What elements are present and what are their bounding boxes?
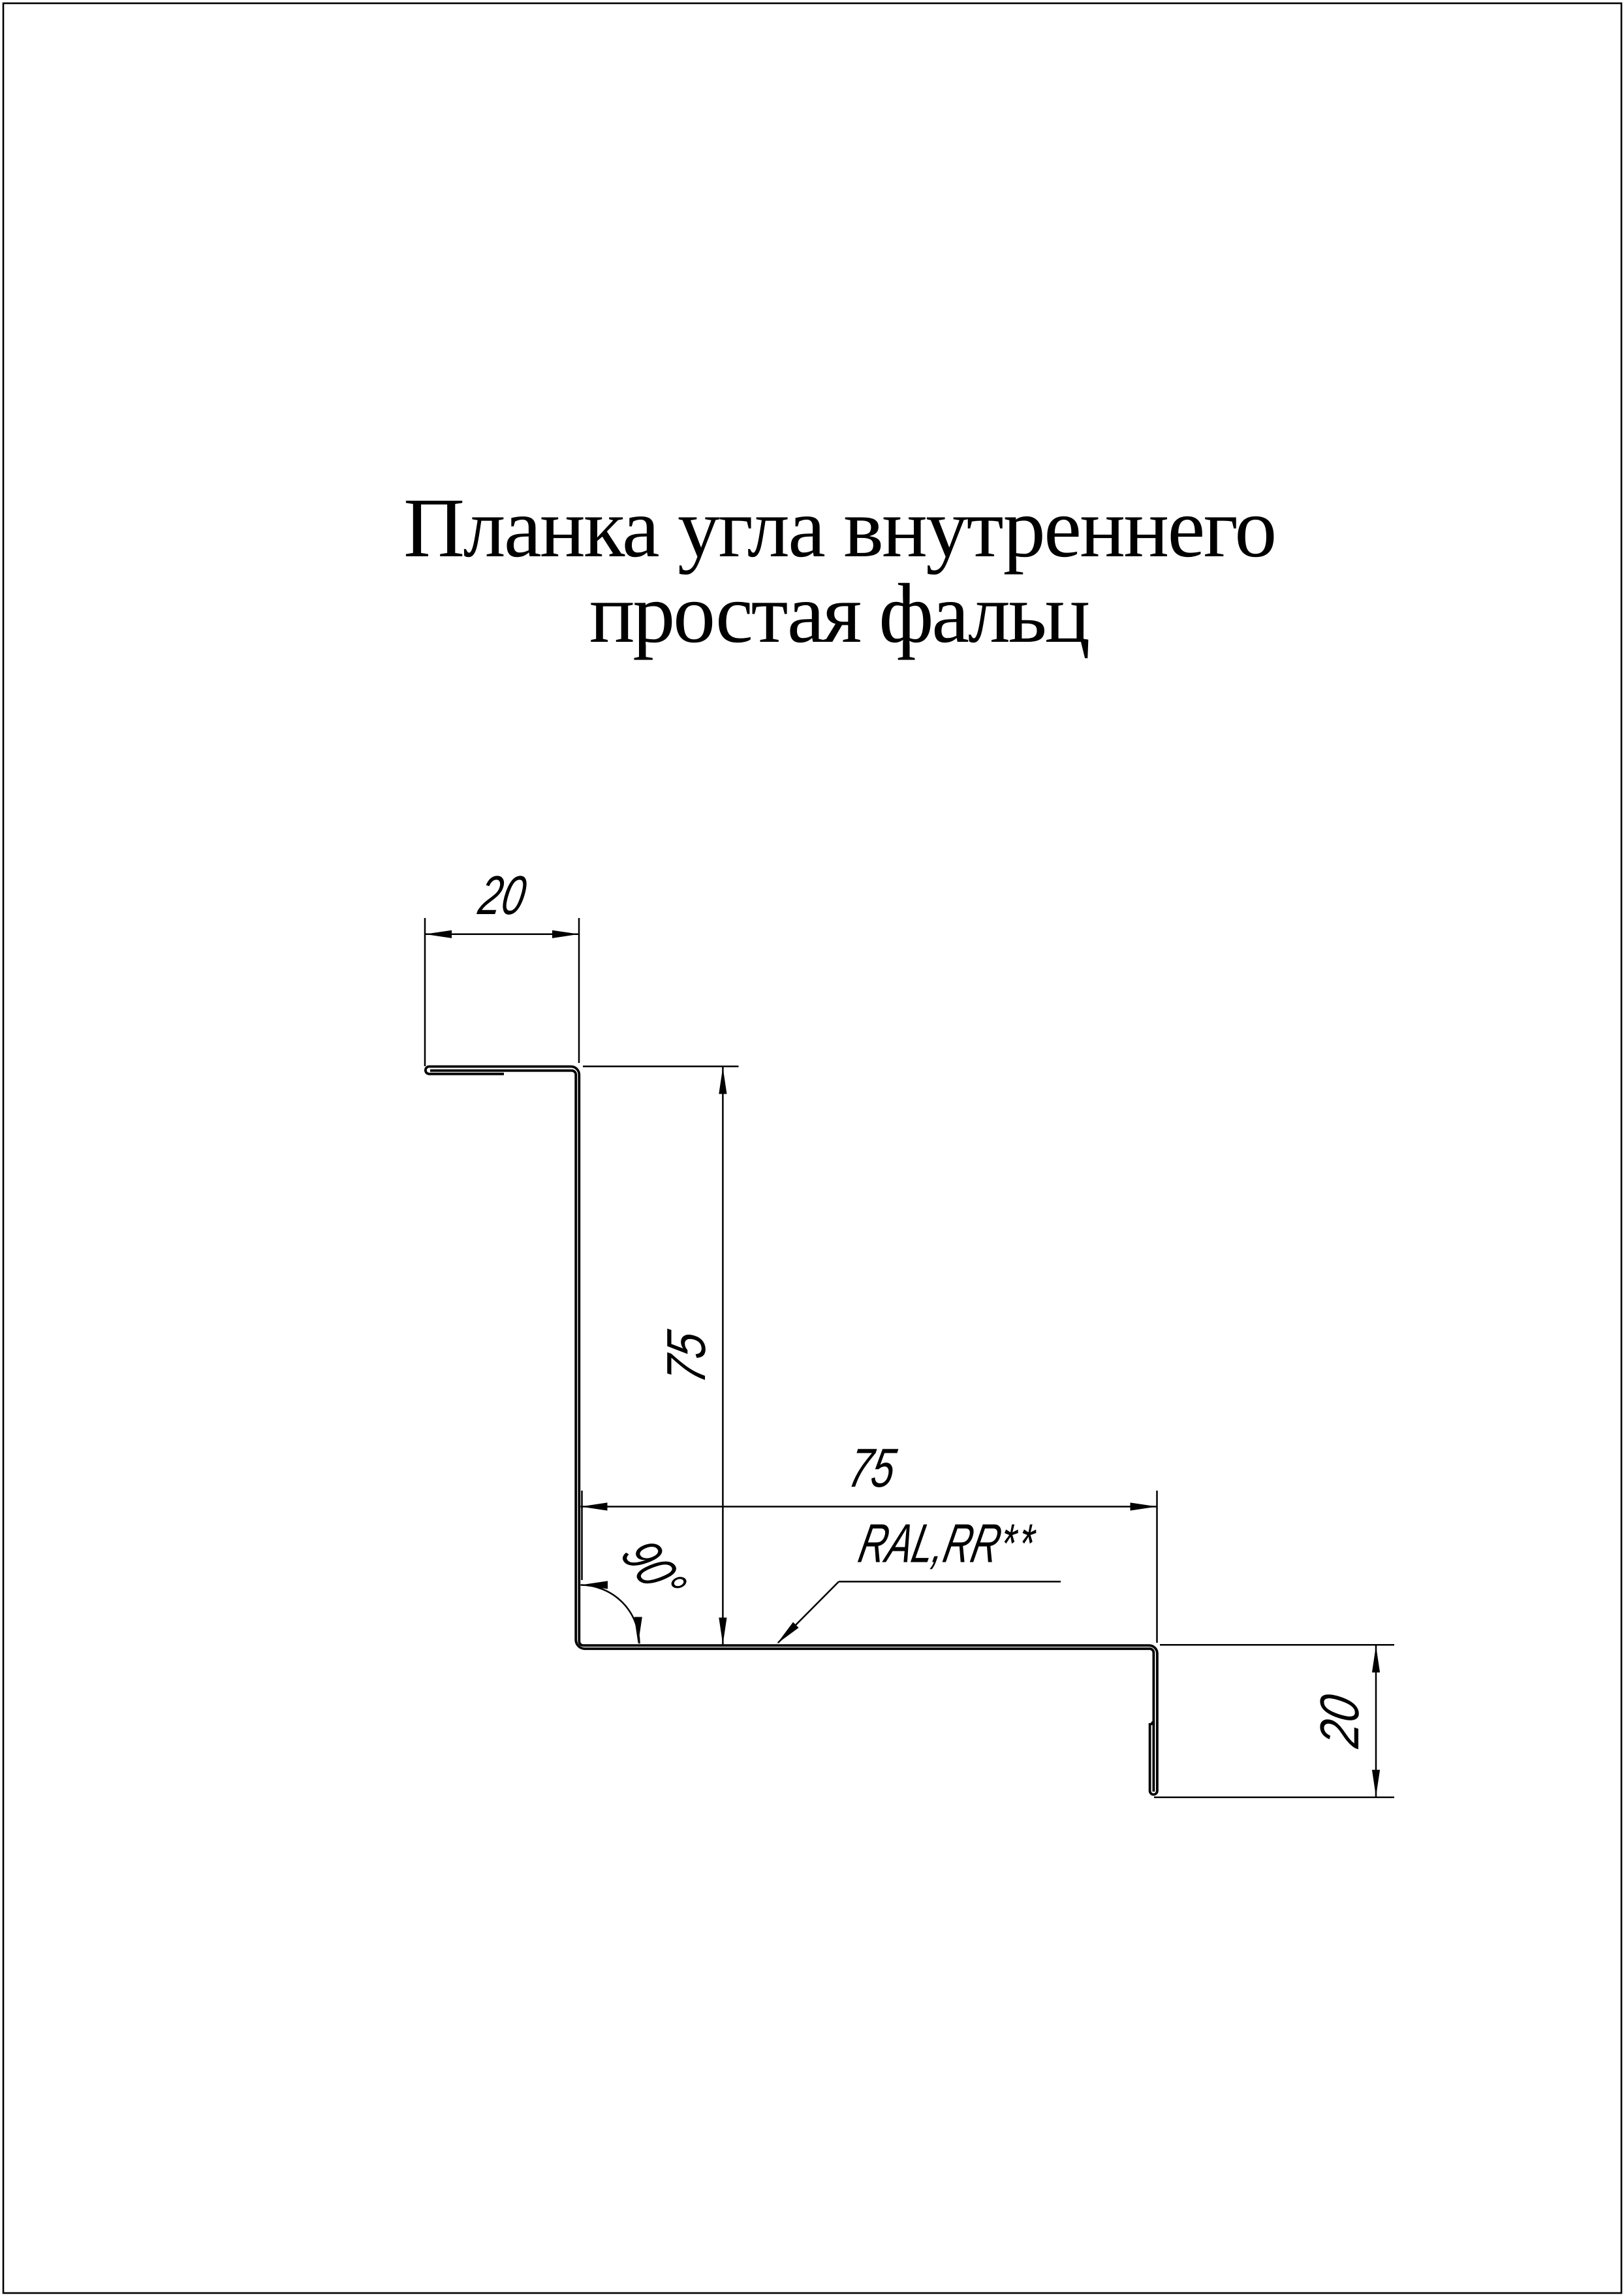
svg-text:90°: 90°	[609, 1532, 699, 1607]
svg-text:75: 75	[656, 1326, 717, 1387]
svg-text:75: 75	[845, 1436, 901, 1498]
svg-text:RAL,RR* *: RAL,RR* *	[854, 1513, 1040, 1574]
svg-text:20: 20	[1309, 1690, 1370, 1752]
svg-text:Планка угла внутреннего: Планка угла внутреннего	[403, 481, 1275, 575]
svg-text:20: 20	[474, 864, 531, 926]
svg-text:простая фальц: простая фальц	[589, 567, 1089, 661]
